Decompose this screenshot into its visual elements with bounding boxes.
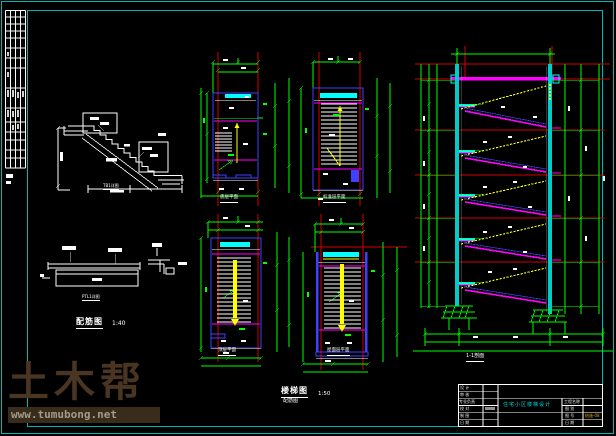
watermark-url: www.tumubong.net: [8, 407, 160, 423]
plan-2-caption: 标准层平面: [323, 196, 346, 203]
stair-section-detail: [40, 100, 190, 195]
beam-detail-caption: PTL1详图: [82, 295, 100, 301]
titleblock-label-date-right: 日 期: [565, 420, 574, 426]
titleblock-label-drawing-type: 图 别: [565, 406, 574, 412]
plan-3-caption: 顶层平面: [218, 349, 236, 356]
center-figure-subtitle: 配筋图: [283, 399, 298, 405]
margin-signature-table: [5, 10, 26, 190]
plan-4-caption: 屋面层平面: [327, 349, 350, 356]
plan-1-caption: 底层平面: [220, 196, 238, 203]
titleblock-label-project-name: 工程名称: [564, 399, 580, 405]
center-figure-title: 楼梯图: [281, 387, 308, 398]
center-figure-scale: 1:50: [318, 391, 330, 397]
cad-drawing-sheet: TB1详图 PTL1详图 配筋图 1:40: [0, 0, 616, 436]
titleblock-label-proofread: 校 对: [460, 406, 469, 412]
titleblock-label-date-left: 日 期: [460, 420, 469, 426]
titleblock-label-drafter: 制 图: [460, 413, 469, 419]
titleblock-label-designer: 设 计: [460, 385, 469, 391]
stair-plan-3: [193, 212, 295, 374]
titleblock-label-discipline: 专业负责: [459, 399, 475, 405]
beam-detail: [40, 238, 195, 293]
watermark-brand: 土木帮: [8, 358, 164, 406]
stair-plan-1: [193, 48, 295, 208]
titleblock-drawing-number: 结施-08: [585, 413, 600, 419]
stair-section-view: [413, 46, 613, 364]
titleblock-label-checker: 审 核: [460, 392, 469, 398]
stair-plan-2: [293, 48, 403, 208]
stair-detail-caption: TB1详图: [103, 184, 119, 190]
section-caption: 1-1剖面: [466, 354, 484, 362]
titleblock-project-title: 住宅小区楼梯设计: [503, 401, 551, 408]
titleblock-label-drawing-no: 图 号: [565, 413, 574, 419]
left-figure-scale: 1:40: [112, 321, 125, 328]
left-figure-title: 配筋图: [76, 318, 103, 329]
